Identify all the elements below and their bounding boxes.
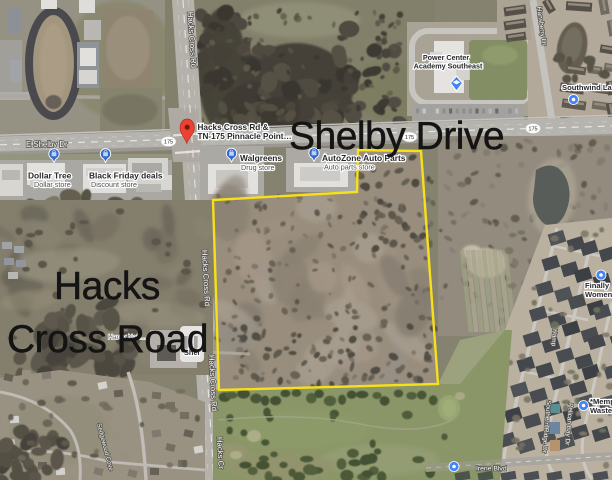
svg-text:Waste: Waste [590, 406, 612, 415]
svg-text:Auto parts store: Auto parts store [324, 163, 375, 172]
svg-text:Dollar store: Dollar store [34, 180, 71, 189]
svg-text:Walgreens: Walgreens [240, 153, 282, 163]
svg-text:Shelby Drive: Shelby Drive [289, 115, 504, 158]
svg-text:175: 175 [528, 127, 537, 133]
svg-text:Academy Southeast: Academy Southeast [414, 62, 483, 71]
svg-text:Finally: Finally [585, 281, 610, 290]
svg-text:*Memp: *Memp [590, 397, 612, 406]
svg-text:Cross Road: Cross Road [7, 318, 208, 361]
svg-text:Drug store: Drug store [241, 163, 275, 172]
svg-text:TN-175 Pinnacle Point…: TN-175 Pinnacle Point… [198, 132, 292, 141]
svg-text:Discount store: Discount store [91, 180, 137, 189]
svg-text:Southwind La: Southwind La [562, 83, 612, 92]
svg-text:E Shelby Dr: E Shelby Dr [26, 140, 68, 149]
svg-text:Hacks Cross Rd &: Hacks Cross Rd & [198, 123, 269, 132]
svg-text:175: 175 [164, 140, 173, 146]
svg-text:Hacks Cr: Hacks Cr [215, 437, 226, 470]
svg-text:Dollar Tree: Dollar Tree [28, 171, 72, 181]
svg-text:Hacks: Hacks [54, 265, 160, 308]
svg-text:Women: Women [585, 290, 612, 299]
svg-text:Irene Blvd: Irene Blvd [476, 466, 507, 473]
svg-text:Black Friday deals: Black Friday deals [89, 171, 163, 181]
